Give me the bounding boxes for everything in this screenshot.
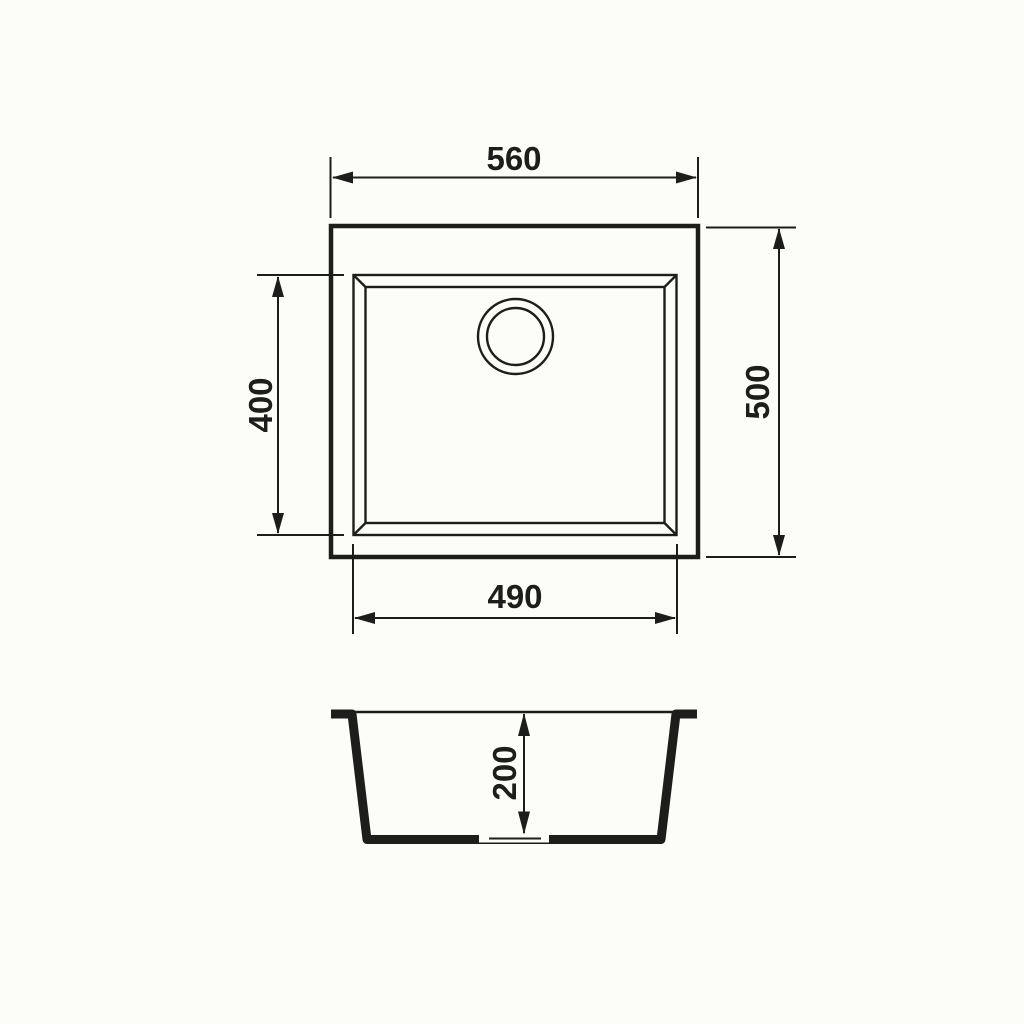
dim-bowl-height: 400 xyxy=(242,275,344,535)
dim-label-bowl-width: 490 xyxy=(487,578,542,615)
arrowhead-down xyxy=(773,535,785,556)
arrowhead-down xyxy=(518,812,530,835)
arrowhead-up xyxy=(518,713,530,736)
drawing-page: 560 500 400 490 xyxy=(0,0,1024,1024)
arrowhead-right xyxy=(676,172,697,184)
dim-label-overall-width: 560 xyxy=(486,140,541,177)
dim-overall-width: 560 xyxy=(331,140,699,218)
arrowhead-left xyxy=(354,612,375,624)
dim-bowl-depth: 200 xyxy=(486,713,530,835)
arrowhead-up xyxy=(272,276,284,297)
arrowhead-right xyxy=(655,612,676,624)
bowl-base-rect xyxy=(366,287,665,523)
drain-outer-circle xyxy=(478,299,553,374)
bowl-corner-chamfer-bl xyxy=(354,523,366,535)
top-view: 560 500 400 490 xyxy=(242,140,796,634)
arrowhead-down xyxy=(272,513,284,534)
bowl-corner-chamfer-tr xyxy=(665,275,677,287)
drain-inner-circle xyxy=(487,308,544,365)
arrowhead-up xyxy=(773,228,785,249)
dim-label-bowl-depth: 200 xyxy=(486,745,523,800)
dim-overall-height: 500 xyxy=(706,228,796,558)
section-view: 200 xyxy=(331,712,697,843)
bowl-corner-chamfer-br xyxy=(665,523,677,535)
arrowhead-left xyxy=(332,172,353,184)
sink-technical-drawing: 560 500 400 490 xyxy=(0,0,1024,1024)
bowl-rim-rect xyxy=(354,275,677,535)
dim-label-bowl-height: 400 xyxy=(242,377,279,432)
dim-label-overall-height: 500 xyxy=(739,364,776,419)
bowl-corner-chamfer-tl xyxy=(354,275,366,287)
